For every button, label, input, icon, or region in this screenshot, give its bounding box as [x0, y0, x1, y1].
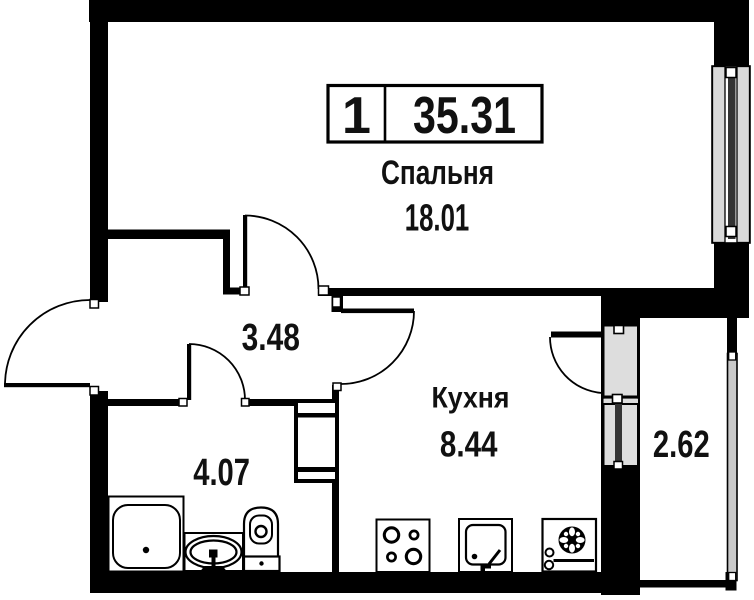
svg-text:Спальня: Спальня [381, 154, 494, 192]
svg-text:4.07: 4.07 [193, 452, 250, 494]
svg-text:Кухня: Кухня [432, 382, 510, 415]
svg-text:35.31: 35.31 [413, 87, 516, 145]
svg-text:8.44: 8.44 [440, 423, 498, 464]
svg-text:2.62: 2.62 [653, 424, 710, 466]
svg-text:3.48: 3.48 [242, 317, 300, 359]
svg-text:18.01: 18.01 [405, 198, 470, 240]
svg-text:1: 1 [342, 87, 371, 145]
